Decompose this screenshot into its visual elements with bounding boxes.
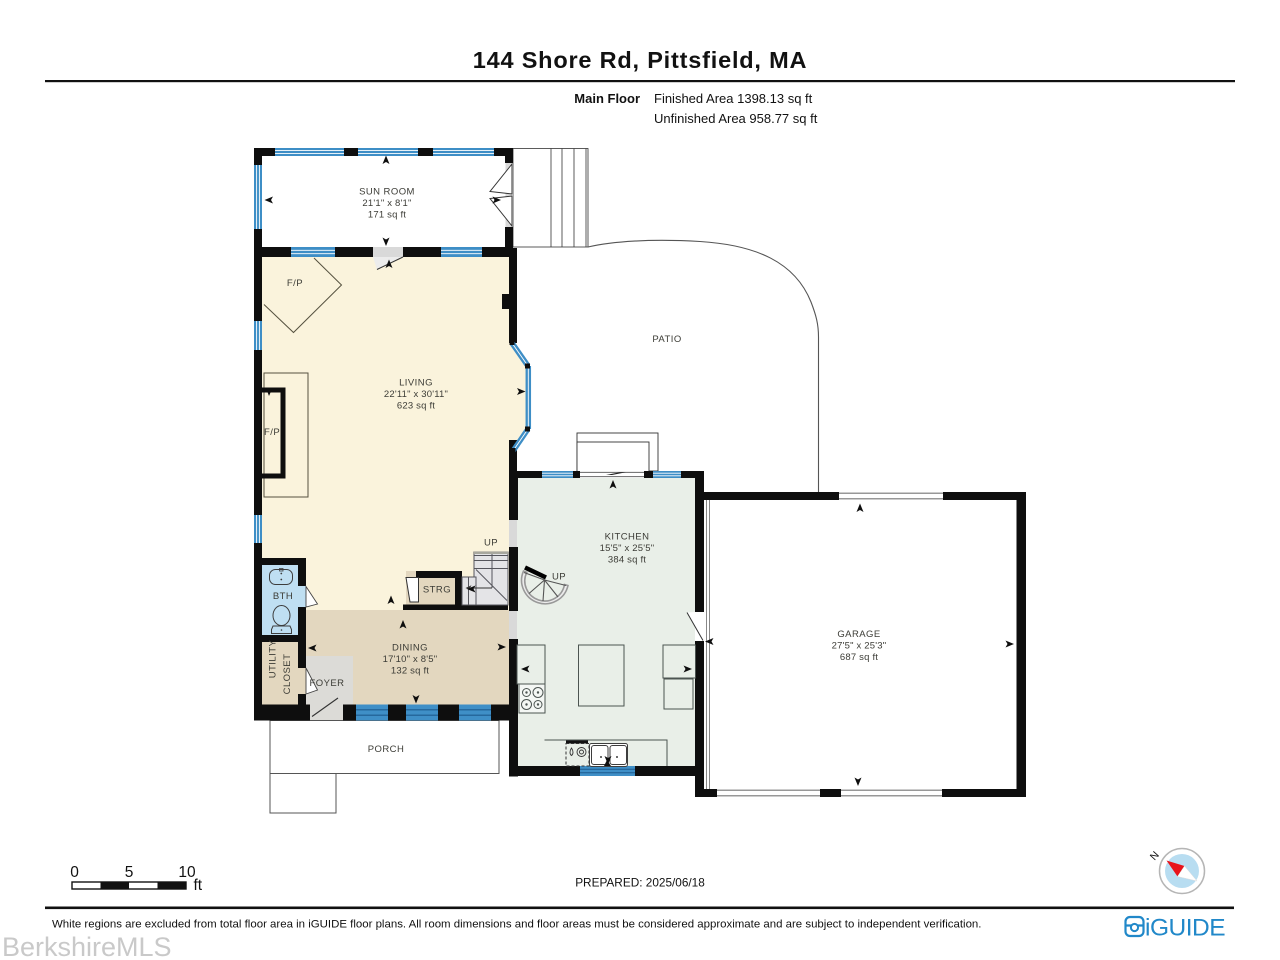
svg-text:UP: UP	[552, 572, 566, 583]
svg-text:BTH: BTH	[273, 591, 293, 602]
svg-text:White regions are excluded fro: White regions are excluded from total fl…	[52, 919, 981, 931]
svg-text:PATIO: PATIO	[652, 334, 681, 345]
svg-text:Main Floor: Main Floor	[574, 91, 640, 106]
svg-text:Unfinished Area 958.77 sq ft: Unfinished Area 958.77 sq ft	[654, 111, 818, 126]
svg-text:PORCH: PORCH	[368, 744, 405, 755]
svg-text:27'5" x 25'3": 27'5" x 25'3"	[832, 641, 887, 652]
svg-text:DINING: DINING	[392, 643, 428, 654]
svg-text:iGUIDE: iGUIDE	[1145, 915, 1225, 942]
svg-text:Finished Area 1398.13 sq ft: Finished Area 1398.13 sq ft	[654, 91, 813, 106]
svg-text:UTILITY: UTILITY	[268, 640, 279, 679]
svg-text:0: 0	[70, 864, 79, 881]
svg-text:384 sq ft: 384 sq ft	[608, 555, 646, 566]
svg-text:132 sq ft: 132 sq ft	[391, 666, 429, 677]
svg-text:15'5" x 25'5": 15'5" x 25'5"	[600, 543, 655, 554]
svg-text:BerkshireMLS: BerkshireMLS	[2, 932, 172, 960]
svg-text:171 sq ft: 171 sq ft	[368, 210, 406, 221]
svg-text:F/P: F/P	[264, 427, 280, 438]
svg-text:GARAGE: GARAGE	[837, 629, 880, 640]
svg-text:22'11" x 30'11": 22'11" x 30'11"	[384, 389, 448, 400]
svg-text:17'10" x 8'5": 17'10" x 8'5"	[383, 654, 438, 665]
svg-text:144 Shore Rd, Pittsfield, MA: 144 Shore Rd, Pittsfield, MA	[473, 47, 808, 73]
svg-text:SUN ROOM: SUN ROOM	[359, 187, 415, 198]
svg-text:623 sq ft: 623 sq ft	[397, 401, 435, 412]
svg-text:KITCHEN: KITCHEN	[605, 532, 650, 543]
svg-text:PREPARED: 2025/06/18: PREPARED: 2025/06/18	[575, 876, 705, 890]
svg-text:687 sq ft: 687 sq ft	[840, 652, 878, 663]
svg-text:STRG: STRG	[423, 585, 451, 596]
svg-text:5: 5	[125, 864, 134, 881]
svg-text:F/P: F/P	[287, 278, 303, 289]
svg-text:FOYER: FOYER	[310, 678, 345, 689]
svg-text:21'1" x 8'1": 21'1" x 8'1"	[362, 198, 411, 209]
svg-text:CLOSET: CLOSET	[282, 654, 293, 695]
svg-text:ft: ft	[194, 877, 203, 894]
svg-text:UP: UP	[484, 538, 498, 549]
svg-text:LIVING: LIVING	[399, 378, 433, 389]
